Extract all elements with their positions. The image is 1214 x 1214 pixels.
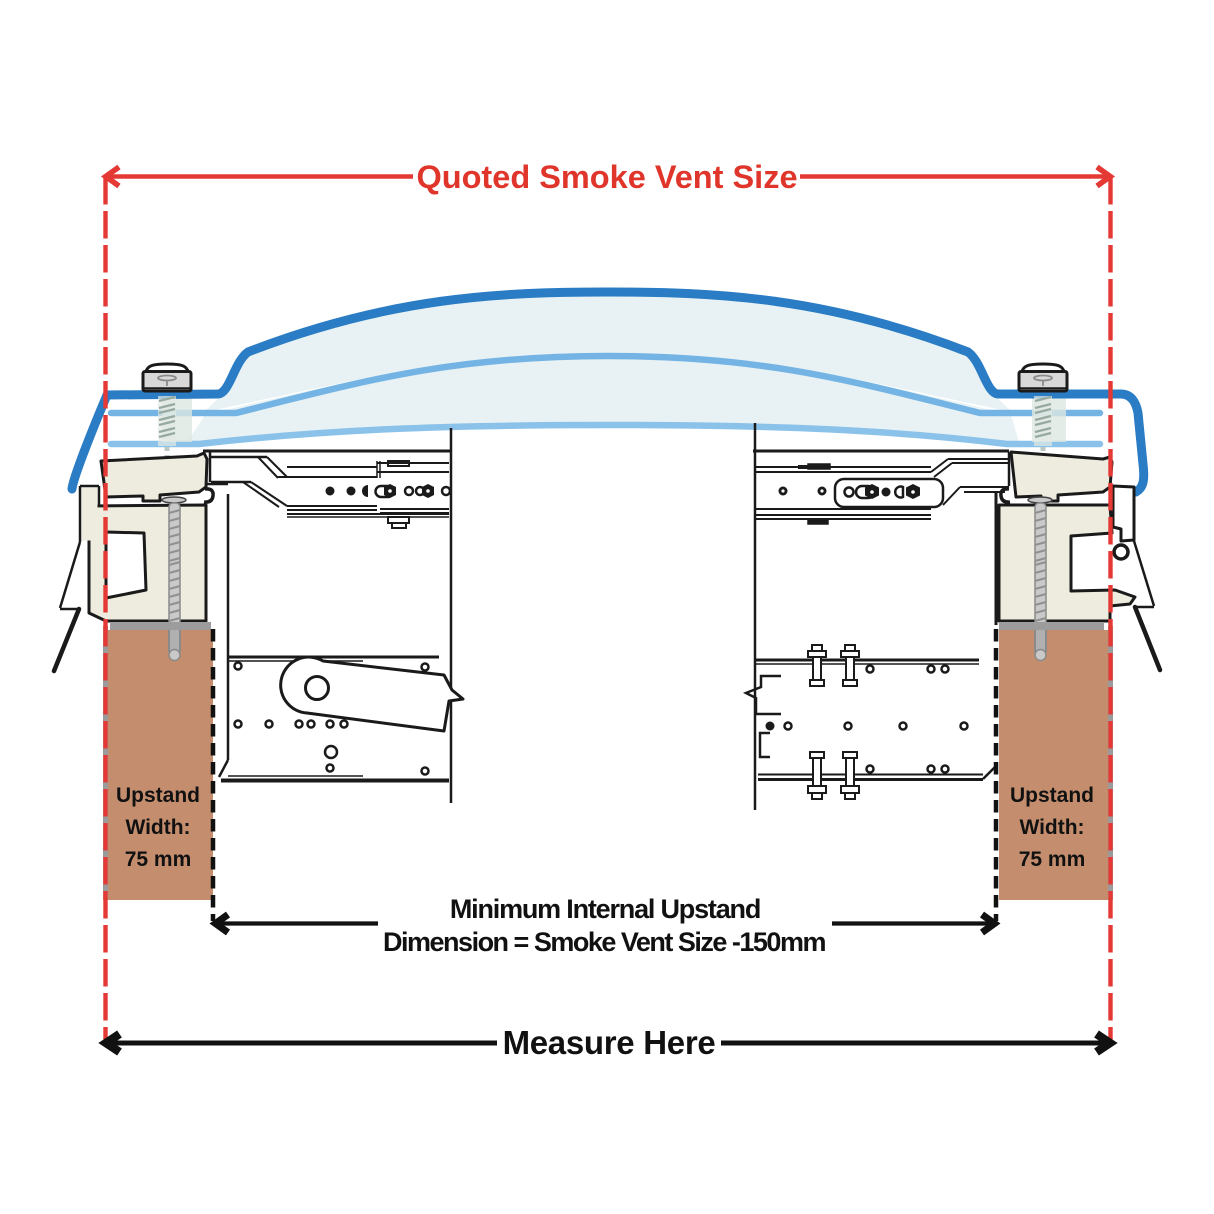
svg-text:Upstand: Upstand [116,784,200,807]
svg-text:Dimension = Smoke Vent Size -1: Dimension = Smoke Vent Size -150mm [383,927,825,957]
svg-text:75 mm: 75 mm [1019,848,1086,871]
svg-text:75 mm: 75 mm [125,848,192,871]
svg-text:Minimum Internal Upstand: Minimum Internal Upstand [450,894,760,924]
svg-text:Measure Here: Measure Here [503,1024,716,1061]
svg-text:Upstand: Upstand [1010,784,1094,807]
svg-text:Width:: Width: [1019,816,1084,839]
svg-text:Quoted Smoke Vent Size: Quoted Smoke Vent Size [416,159,797,195]
svg-text:Width:: Width: [125,816,190,839]
